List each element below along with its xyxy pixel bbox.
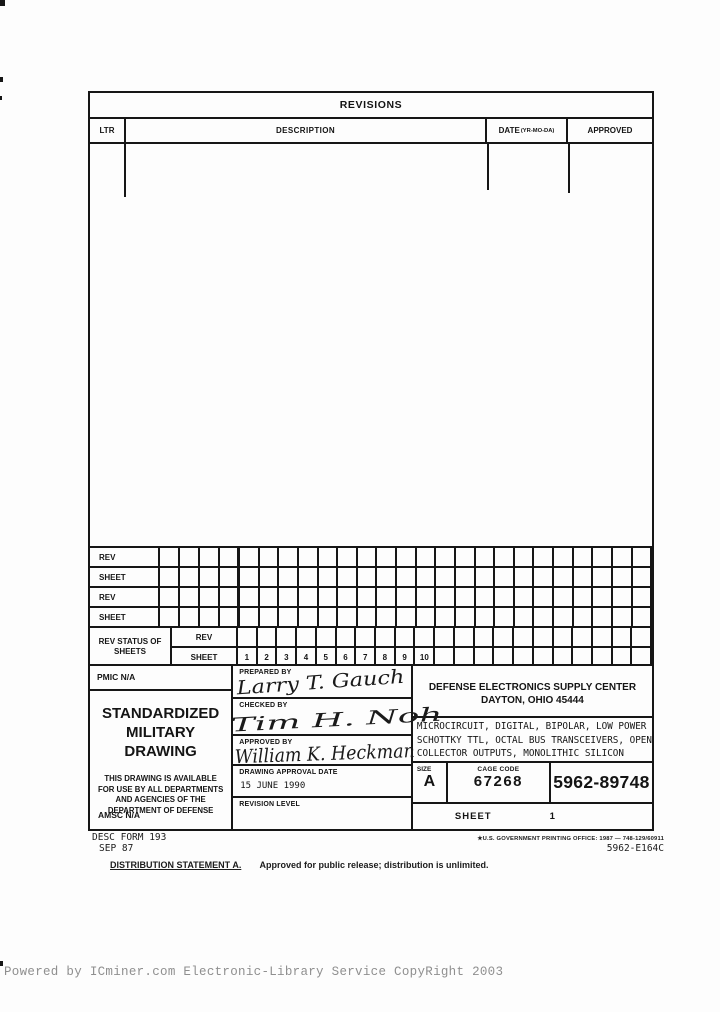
- rev-grid-cell: [574, 548, 594, 566]
- scan-artifact: [0, 96, 2, 100]
- rev-grid-cell: [260, 568, 280, 586]
- drawing-approval-date-value: 15 JUNE 1990: [240, 781, 305, 791]
- rev-status-cell: [435, 628, 455, 646]
- rev-grid-cell: [456, 548, 476, 566]
- prepared-by-signature: Larry T. Gauch: [233, 666, 418, 702]
- rev-grid-cell: [260, 548, 280, 566]
- rev-grid-cell: [534, 568, 554, 586]
- rev-grid-cell: [397, 568, 417, 586]
- agency-line1: DEFENSE ELECTRONICS SUPPLY CENTER: [413, 681, 652, 694]
- rev-grid-cell: [377, 608, 397, 626]
- rev-grid-cell: [417, 608, 437, 626]
- device-description-line1: MICROCIRCUIT, DIGITAL, BIPOLAR, LOW POWE…: [417, 720, 652, 734]
- rev-grid-cell: [260, 588, 280, 606]
- rev-grid-cell: [417, 548, 437, 566]
- rev-grid-cell: [377, 568, 397, 586]
- rev-status-cell: [534, 628, 554, 646]
- distribution-statement-label: DISTRIBUTION STATEMENT A.: [110, 860, 241, 870]
- rev-status-cell: [258, 628, 278, 646]
- rev-grid-cell: [338, 548, 358, 566]
- rev-grid-row-label: REV: [90, 588, 160, 606]
- revision-level-label: REVISION LEVEL: [233, 798, 411, 808]
- rev-grid-cell: [436, 588, 456, 606]
- rev-grid-cell: [495, 568, 515, 586]
- rev-grid-cell: [220, 588, 240, 606]
- rev-grid-cell: [613, 588, 633, 606]
- rev-grid-cell: [534, 548, 554, 566]
- rev-grid-cell: [593, 568, 613, 586]
- rev-grid-cell: [279, 548, 299, 566]
- revisions-table-title: REVISIONS: [90, 93, 652, 119]
- rev-grid-row-label: SHEET: [90, 568, 160, 586]
- rev-grid-cell: [319, 568, 339, 586]
- rev-grid-cell: [240, 588, 260, 606]
- rev-grid-cell: [240, 568, 260, 586]
- form-date: SEP 87: [92, 844, 166, 855]
- library-watermark: Powered by ICminer.com Electronic-Librar…: [4, 965, 503, 979]
- column-divider-stub: [487, 144, 489, 190]
- rev-status-cell: [573, 628, 593, 646]
- rev-grid-cell: [220, 548, 240, 566]
- signature-column: PREPARED BY Larry T. Gauch CHECKED BY Ti…: [233, 666, 413, 829]
- rev-grid-cell: [200, 588, 220, 606]
- rev-grid-cell: [160, 608, 180, 626]
- rev-grid-cell: [299, 548, 319, 566]
- rev-grid-cell: [534, 608, 554, 626]
- checked-by-signature: Tim H. Noh: [233, 699, 433, 739]
- rev-grid-cell: [574, 568, 594, 586]
- rev-status-cell: [554, 628, 574, 646]
- rev-grid-cell: [633, 588, 653, 606]
- rev-grid-cell: [160, 568, 180, 586]
- agency-line2: DAYTON, OHIO 45444: [413, 694, 652, 707]
- rev-status-cell: [317, 628, 337, 646]
- rev-grid-cell: [338, 608, 358, 626]
- rev-grid-cell: [160, 548, 180, 566]
- prepared-by-cell: PREPARED BY Larry T. Gauch: [233, 666, 411, 699]
- rev-grid-cell: [319, 548, 339, 566]
- title-block-right-column: DEFENSE ELECTRONICS SUPPLY CENTER DAYTON…: [413, 666, 652, 829]
- rev-status-rev-row: REV: [172, 628, 652, 648]
- document-code: 5962-E164C: [607, 843, 664, 854]
- rev-grid-row: REV: [90, 588, 652, 608]
- rev-status-cell: [415, 628, 435, 646]
- rev-grid-cell: [180, 588, 200, 606]
- sheet-cell: SHEET 1: [413, 804, 652, 829]
- rev-grid-cell: [515, 588, 535, 606]
- rev-status-cell: [632, 628, 652, 646]
- rev-grid-row-label: REV: [90, 548, 160, 566]
- rev-grid-cell: [338, 568, 358, 586]
- rev-grid-cell: [613, 548, 633, 566]
- rev-grid-cell: [220, 608, 240, 626]
- rev-grid-cell: [476, 588, 496, 606]
- rev-grid-cell: [554, 608, 574, 626]
- rev-grid-cell: [299, 608, 319, 626]
- size-cage-number-row: SIZE A CAGE CODE 67268 5962-89748: [413, 763, 652, 804]
- rev-grid-cell: [495, 548, 515, 566]
- rev-status-cell: [455, 628, 475, 646]
- rev-grid-cell: [456, 588, 476, 606]
- svg-text:Larry T. Gauch: Larry T. Gauch: [235, 666, 405, 700]
- rev-grid-cell: [299, 568, 319, 586]
- printing-office-note: ★U.S. GOVERNMENT PRINTING OFFICE: 1987 —…: [477, 836, 664, 842]
- rev-grid-cell: [260, 608, 280, 626]
- rev-grid-row: SHEET: [90, 608, 652, 628]
- rev-grid-cell: [180, 568, 200, 586]
- rev-grid-cell: [476, 548, 496, 566]
- rev-status-cell: [613, 628, 633, 646]
- rev-grid-cell: [436, 608, 456, 626]
- scan-artifact: [0, 0, 5, 6]
- rev-grid-cell: [593, 588, 613, 606]
- rev-grid-cell: [554, 588, 574, 606]
- rev-grid-cell: [515, 548, 535, 566]
- sheet-value: 1: [550, 811, 555, 822]
- rev-grid-cell: [338, 588, 358, 606]
- form-identifier: DESC FORM 193 SEP 87: [92, 833, 166, 854]
- rev-grid-cell: [476, 608, 496, 626]
- rev-grid-cell: [377, 548, 397, 566]
- rev-grid-row: SHEET: [90, 568, 652, 588]
- svg-text:Tim H. Noh: Tim H. Noh: [230, 704, 443, 737]
- rev-grid-cell: [534, 588, 554, 606]
- rev-status-cell: [475, 628, 495, 646]
- distribution-statement-text: Approved for public release; distributio…: [260, 860, 489, 870]
- rev-grid-cell: [593, 608, 613, 626]
- rev-grid-cell: [279, 568, 299, 586]
- amsc-field: AMSC N/A: [98, 810, 140, 820]
- rev-grid-cell: [456, 608, 476, 626]
- cage-code-cell: CAGE CODE 67268: [448, 763, 551, 802]
- rev-grid-cell: [417, 588, 437, 606]
- rev-grid-cell: [319, 608, 339, 626]
- approved-by-cell: APPROVED BY William K. Heckman: [233, 736, 411, 766]
- rev-grid-cell: [377, 588, 397, 606]
- cage-code-value: 67268: [448, 773, 549, 791]
- rev-grid-row-label: SHEET: [90, 608, 160, 626]
- form-number: DESC FORM 193: [92, 833, 166, 844]
- rev-grid-cell: [515, 608, 535, 626]
- rev-grid-cell: [240, 548, 260, 566]
- sheet-label: SHEET: [455, 811, 492, 822]
- smd-title: STANDARDIZED MILITARY DRAWING: [90, 704, 231, 761]
- size-value: A: [413, 773, 446, 791]
- rev-status-cell: [514, 628, 534, 646]
- cage-code-label: CAGE CODE: [448, 763, 549, 773]
- rev-grid-cell: [456, 568, 476, 586]
- approved-by-signature: William K. Heckman: [233, 736, 418, 770]
- rev-status-cell: [593, 628, 613, 646]
- rev-grid-cell: [495, 588, 515, 606]
- rev-grid-cell: [633, 608, 653, 626]
- rev-grid-cell: [476, 568, 496, 586]
- rev-grid-cell: [200, 608, 220, 626]
- rev-status-cell: [277, 628, 297, 646]
- scan-artifact: [0, 77, 3, 82]
- distribution-statement: DISTRIBUTION STATEMENT A. Approved for p…: [110, 860, 489, 870]
- rev-status-cell: [396, 628, 416, 646]
- rev-grid-cell: [180, 548, 200, 566]
- revisions-empty-area: [90, 197, 652, 546]
- revisions-col-date-main: DATE: [499, 126, 520, 135]
- rev-grid-cell: [613, 568, 633, 586]
- rev-status-cell: [494, 628, 514, 646]
- rev-grid-cell: [220, 568, 240, 586]
- rev-grid-cell: [397, 588, 417, 606]
- revisions-col-date: DATE (YR-MO-DA): [487, 119, 568, 142]
- title-block-left-column: PMIC N/A STANDARDIZED MILITARY DRAWING T…: [90, 666, 233, 829]
- checked-by-cell: CHECKED BY Tim H. Noh: [233, 699, 411, 736]
- revisions-table-header: LTR DESCRIPTION DATE (YR-MO-DA) APPROVED: [90, 119, 652, 144]
- rev-grid-cell: [160, 588, 180, 606]
- rev-grid-cell: [613, 608, 633, 626]
- drawing-number: 5962-89748: [551, 763, 652, 802]
- rev-grid-cell: [279, 588, 299, 606]
- rev-grid-cell: [554, 568, 574, 586]
- rev-grid-cell: [358, 588, 378, 606]
- rev-status-of-sheets: REV STATUS OF SHEETS REV SHEET 123456789…: [90, 628, 652, 666]
- agency-name: DEFENSE ELECTRONICS SUPPLY CENTER DAYTON…: [413, 666, 652, 718]
- rev-status-rev-label: REV: [172, 628, 238, 646]
- rev-grid-cell: [436, 568, 456, 586]
- rev-grid-cell: [633, 568, 653, 586]
- rev-grid-cell: [279, 608, 299, 626]
- rev-grid-cell: [200, 568, 220, 586]
- drawing-approval-date-cell: DRAWING APPROVAL DATE 15 JUNE 1990: [233, 766, 411, 798]
- rev-grid-cell: [319, 588, 339, 606]
- rev-grid-cell: [180, 608, 200, 626]
- rev-grid-cell: [397, 548, 417, 566]
- device-description-line3: COLLECTOR OUTPUTS, MONOLITHIC SILICON: [417, 747, 652, 761]
- column-divider-stub: [124, 144, 126, 197]
- rev-grid-cell: [436, 548, 456, 566]
- rev-grid-cell: [574, 608, 594, 626]
- rev-grid-cell: [633, 548, 653, 566]
- rev-grid-cell: [574, 588, 594, 606]
- revisions-col-description: DESCRIPTION: [126, 119, 487, 142]
- rev-status-label: REV STATUS OF SHEETS: [90, 628, 172, 666]
- rev-grid-cell: [358, 608, 378, 626]
- rev-grid-cell: [358, 568, 378, 586]
- rev-grid-cell: [495, 608, 515, 626]
- rev-grid-cell: [299, 588, 319, 606]
- rev-grid-cell: [240, 608, 260, 626]
- rev-grid-cell: [515, 568, 535, 586]
- rev-status-cell: [376, 628, 396, 646]
- column-divider-stub: [568, 144, 570, 193]
- revisions-col-date-sub: (YR-MO-DA): [521, 128, 555, 134]
- rev-grid-row: REV: [90, 548, 652, 568]
- title-block: PMIC N/A STANDARDIZED MILITARY DRAWING T…: [90, 664, 652, 829]
- rev-grid-cell: [593, 548, 613, 566]
- pmic-field: PMIC N/A: [90, 666, 231, 691]
- device-description-line2: SCHOTTKY TTL, OCTAL BUS TRANSCEIVERS, OP…: [417, 734, 652, 748]
- rev-status-cell: [337, 628, 357, 646]
- rev-grid-cell: [200, 548, 220, 566]
- rev-sheet-grid: REVSHEETREVSHEET REV STATUS OF SHEETS RE…: [90, 546, 652, 666]
- rev-grid-cell: [397, 608, 417, 626]
- rev-status-cell: [356, 628, 376, 646]
- revision-level-cell: REVISION LEVEL: [233, 798, 411, 829]
- rev-grid-cell: [417, 568, 437, 586]
- revisions-col-approved: APPROVED: [568, 119, 652, 142]
- scan-artifact: [0, 961, 3, 966]
- rev-status-cell: [238, 628, 258, 646]
- svg-text:William K. Heckman: William K. Heckman: [235, 740, 416, 768]
- smd-form-outline: REVISIONS LTR DESCRIPTION DATE (YR-MO-DA…: [88, 91, 654, 831]
- scanned-document-page: REVISIONS LTR DESCRIPTION DATE (YR-MO-DA…: [0, 0, 720, 1012]
- device-description: MICROCIRCUIT, DIGITAL, BIPOLAR, LOW POWE…: [413, 718, 652, 763]
- rev-status-cell: [297, 628, 317, 646]
- rev-grid-cell: [358, 548, 378, 566]
- rev-grid-cell: [554, 548, 574, 566]
- revisions-col-ltr: LTR: [90, 119, 126, 142]
